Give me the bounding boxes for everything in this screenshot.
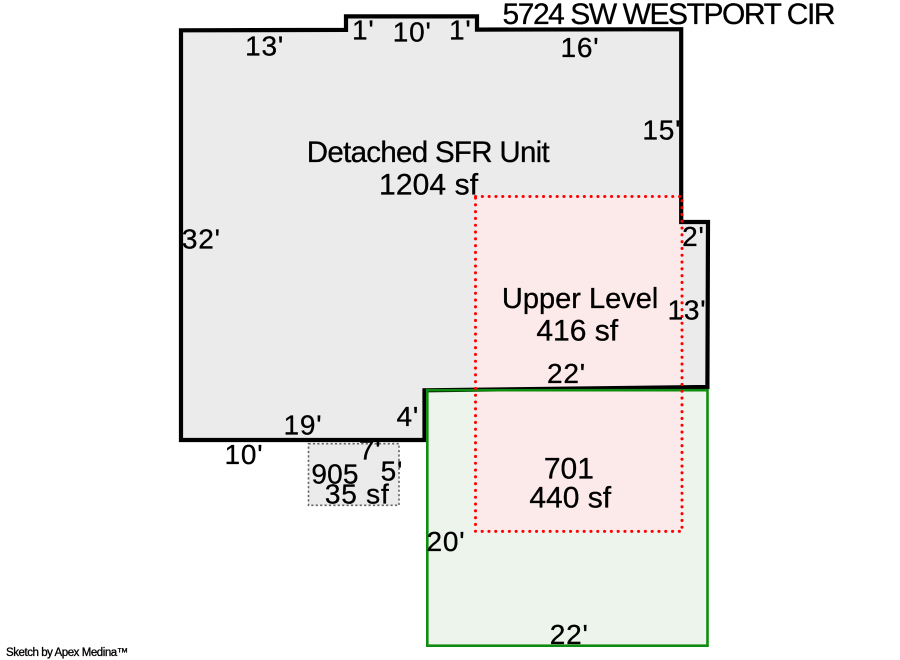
svg-text:5': 5' <box>381 456 404 487</box>
svg-text:19': 19' <box>284 410 323 441</box>
svg-text:1': 1' <box>352 14 375 45</box>
svg-text:Sketch by Apex Medina™: Sketch by Apex Medina™ <box>6 647 128 659</box>
svg-text:1204 sf: 1204 sf <box>379 169 479 202</box>
svg-text:10': 10' <box>393 17 432 48</box>
svg-text:Upper Level: Upper Level <box>502 283 658 315</box>
svg-text:7': 7' <box>359 435 382 466</box>
svg-text:10': 10' <box>225 439 264 470</box>
svg-text:2': 2' <box>682 221 705 252</box>
svg-text:22': 22' <box>547 358 586 389</box>
svg-text:13': 13' <box>245 31 284 62</box>
svg-text:Detached SFR Unit: Detached SFR Unit <box>307 136 550 169</box>
svg-text:440 sf: 440 sf <box>529 481 611 514</box>
svg-text:416 sf: 416 sf <box>536 315 618 348</box>
svg-text:22': 22' <box>550 619 589 650</box>
svg-text:5724 SW WESTPORT CIR: 5724 SW WESTPORT CIR <box>502 0 834 31</box>
svg-text:16': 16' <box>561 32 600 63</box>
svg-text:13': 13' <box>668 295 707 326</box>
svg-text:32': 32' <box>182 223 221 254</box>
svg-text:15': 15' <box>642 115 681 146</box>
svg-text:20': 20' <box>427 526 466 557</box>
svg-text:4': 4' <box>397 401 420 432</box>
svg-text:1': 1' <box>449 14 472 45</box>
